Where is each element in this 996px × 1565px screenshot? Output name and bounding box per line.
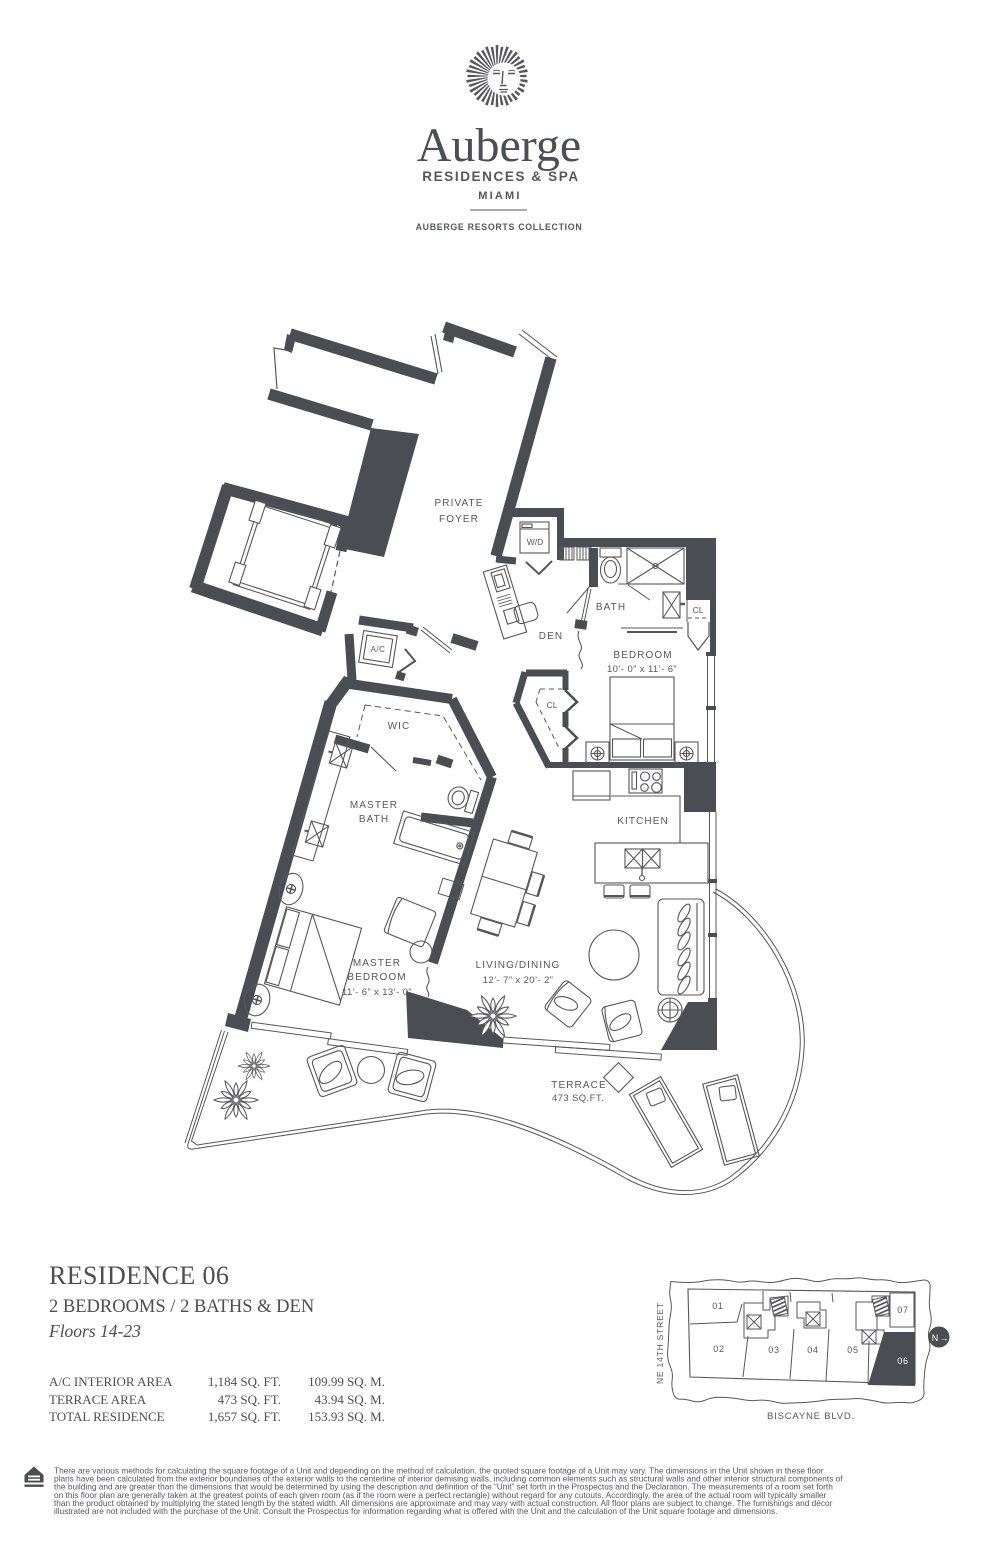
svg-text:NE 14TH STREET: NE 14TH STREET xyxy=(655,1302,665,1384)
svg-text:01: 01 xyxy=(712,1301,724,1311)
svg-text:BISCAYNE BLVD.: BISCAYNE BLVD. xyxy=(767,1411,855,1422)
svg-text:TERRACE: TERRACE xyxy=(551,1080,606,1091)
svg-text:109.99 SQ. M.: 109.99 SQ. M. xyxy=(308,1374,385,1389)
svg-text:A/C INTERIOR AREA: A/C INTERIOR AREA xyxy=(49,1374,173,1389)
svg-text:CL: CL xyxy=(547,700,558,710)
svg-text:10’- 0” x 11’- 6”: 10’- 0” x 11’- 6” xyxy=(607,664,677,675)
svg-text:WIC: WIC xyxy=(388,721,411,732)
svg-text:06: 06 xyxy=(897,1356,909,1366)
svg-text:KITCHEN: KITCHEN xyxy=(617,816,669,827)
svg-text:473 SQ. FT.: 473 SQ. FT. xyxy=(218,1392,281,1407)
svg-text:BATH: BATH xyxy=(359,814,389,825)
svg-text:PRIVATE: PRIVATE xyxy=(434,498,483,509)
svg-text:11’- 6” x 13’- 0”: 11’- 6” x 13’- 0” xyxy=(342,987,412,998)
svg-text:W/D: W/D xyxy=(527,537,544,547)
svg-text:03: 03 xyxy=(768,1345,780,1355)
svg-text:153.93 SQ. M.: 153.93 SQ. M. xyxy=(308,1409,385,1424)
svg-text:→: → xyxy=(940,1333,949,1343)
svg-text:BEDROOM: BEDROOM xyxy=(347,972,406,983)
svg-text:43.94 SQ. M.: 43.94 SQ. M. xyxy=(315,1392,385,1407)
svg-text:473 SQ.FT.: 473 SQ.FT. xyxy=(552,1093,604,1104)
svg-text:04: 04 xyxy=(807,1345,819,1355)
svg-text:BEDROOM: BEDROOM xyxy=(613,650,672,661)
svg-text:RESIDENCE 06: RESIDENCE 06 xyxy=(49,1261,229,1290)
svg-text:LIVING/DINING: LIVING/DINING xyxy=(476,960,561,971)
svg-text:TOTAL RESIDENCE: TOTAL RESIDENCE xyxy=(49,1409,165,1424)
svg-text:1,184 SQ. FT.: 1,184 SQ. FT. xyxy=(208,1374,281,1389)
svg-text:BATH: BATH xyxy=(596,602,626,613)
svg-text:TERRACE AREA: TERRACE AREA xyxy=(49,1392,147,1407)
svg-text:MIAMI: MIAMI xyxy=(478,190,521,202)
svg-text:N: N xyxy=(932,1333,939,1343)
svg-text:Auberge: Auberge xyxy=(417,119,581,172)
svg-text:RESIDENCES & SPA: RESIDENCES & SPA xyxy=(422,169,579,184)
svg-text:Floors 14-23: Floors 14-23 xyxy=(48,1321,141,1341)
svg-text:1,657 SQ. FT.: 1,657 SQ. FT. xyxy=(208,1409,281,1424)
svg-text:07: 07 xyxy=(897,1305,909,1315)
svg-text:05: 05 xyxy=(847,1345,859,1355)
svg-text:12’- 7” x 20’- 2”: 12’- 7” x 20’- 2” xyxy=(483,975,554,986)
svg-text:2 BEDROOMS / 2 BATHS & DEN: 2 BEDROOMS / 2 BATHS & DEN xyxy=(49,1297,314,1317)
svg-text:DEN: DEN xyxy=(539,631,563,642)
svg-text:MASTER: MASTER xyxy=(353,958,401,969)
svg-text:FOYER: FOYER xyxy=(439,514,479,525)
svg-text:illustrated are not included w: illustrated are not included with the pu… xyxy=(54,1506,777,1516)
svg-text:AUBERGE RESORTS COLLECTION: AUBERGE RESORTS COLLECTION xyxy=(416,222,583,232)
svg-text:A/C: A/C xyxy=(371,645,386,654)
svg-text:02: 02 xyxy=(713,1344,725,1354)
svg-text:CL: CL xyxy=(693,605,704,615)
svg-text:MASTER: MASTER xyxy=(350,800,398,811)
